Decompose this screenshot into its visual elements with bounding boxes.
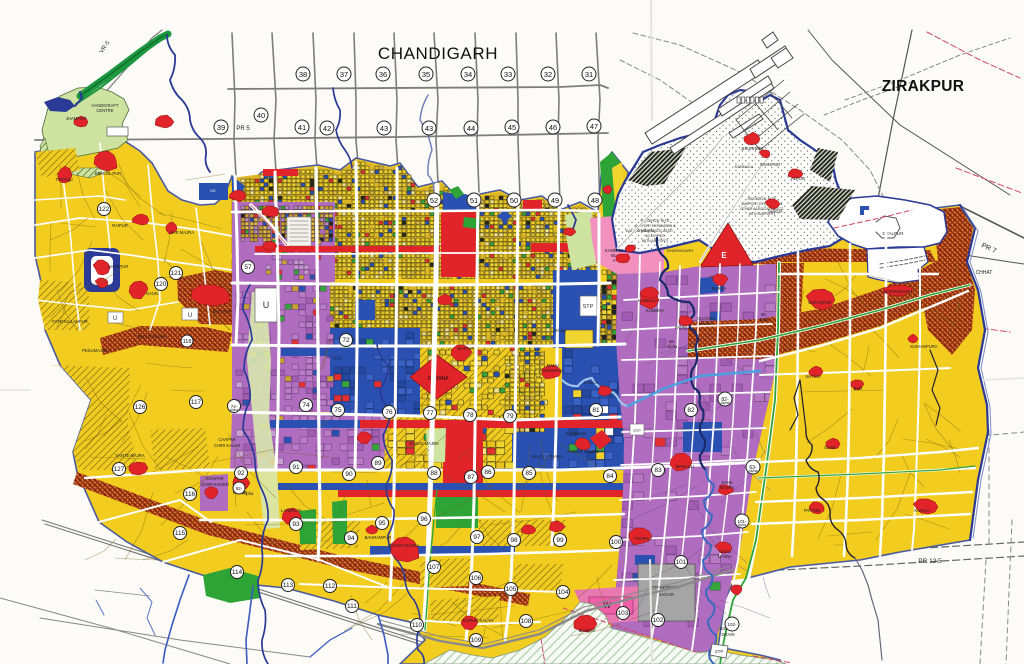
- svg-text:U: U: [263, 300, 270, 310]
- svg-text:BAHRAMPUR: BAHRAMPUR: [365, 535, 392, 540]
- svg-text:85: 85: [525, 470, 533, 477]
- svg-text:CENTRE: CENTRE: [96, 108, 113, 113]
- svg-text:MAJRA: MAJRA: [718, 554, 732, 559]
- svg-text:49: 49: [551, 196, 559, 205]
- svg-text:42: 42: [323, 124, 331, 133]
- svg-text:SHAHPUR: SHAHPUR: [760, 162, 780, 167]
- svg-text:115: 115: [175, 530, 186, 537]
- svg-text:DAUN: DAUN: [146, 291, 158, 296]
- svg-text:NATIAN: NATIAN: [805, 374, 820, 379]
- svg-text:A: A: [613, 258, 616, 263]
- svg-text:KISHANPURA: KISHANPURA: [910, 344, 937, 349]
- svg-text:E: E: [721, 251, 727, 260]
- svg-text:92: 92: [237, 470, 245, 477]
- svg-text:112: 112: [325, 583, 336, 590]
- svg-text:ACTIVITIES: ACTIVITIES: [645, 234, 665, 238]
- svg-text:Alpha: Alpha: [230, 408, 238, 412]
- svg-text:KANDALA: KANDALA: [735, 164, 754, 169]
- svg-text:PR 12.5: PR 12.5: [918, 558, 942, 565]
- svg-text:43: 43: [425, 124, 433, 133]
- svg-text:BAR: BAR: [854, 386, 863, 391]
- svg-text:KURALI: KURALI: [914, 508, 929, 513]
- svg-text:106: 106: [471, 575, 482, 582]
- svg-text:CHAPAR: CHAPAR: [218, 437, 235, 442]
- svg-text:BARIANGARH: BARIANGARH: [884, 289, 912, 294]
- svg-text:MANAV MAJRA: MANAV MAJRA: [409, 441, 439, 446]
- svg-text:STP: STP: [633, 428, 641, 433]
- svg-text:NAGAR: NAGAR: [658, 592, 675, 597]
- svg-text:113: 113: [283, 582, 294, 589]
- svg-text:PESUMAJRA: PESUMAJRA: [82, 348, 108, 353]
- svg-text:CHANDIGARH: CHANDIGARH: [378, 44, 498, 63]
- svg-text:DG: DG: [210, 189, 216, 193]
- svg-text:41: 41: [298, 123, 306, 132]
- svg-text:LANDRAN: LANDRAN: [281, 508, 301, 513]
- svg-text:45: 45: [508, 123, 516, 132]
- svg-text:94: 94: [347, 535, 355, 542]
- svg-text:U: U: [113, 316, 117, 322]
- svg-text:40: 40: [257, 111, 265, 120]
- svg-text:82: 82: [687, 407, 695, 414]
- svg-text:DAKARPUR: DAKARPUR: [808, 300, 831, 305]
- svg-text:SHANPUR: SHANPUR: [108, 264, 128, 269]
- svg-text:39: 39: [217, 123, 225, 132]
- svg-text:Alpha: Alpha: [749, 469, 758, 473]
- svg-text:91: 91: [292, 464, 300, 471]
- svg-text:KUMBRA: KUMBRA: [646, 308, 664, 313]
- svg-text:JHIURHERI: JHIURHERI: [741, 146, 763, 151]
- svg-text:120: 120: [156, 281, 167, 288]
- svg-text:JANGIA: JANGIA: [767, 209, 782, 214]
- svg-text:JHAMPUR: JHAMPUR: [66, 116, 86, 121]
- svg-text:BANETA: BANETA: [579, 628, 596, 633]
- svg-text:100: 100: [611, 539, 622, 546]
- svg-text:118: 118: [183, 339, 192, 345]
- svg-text:KANDALA: KANDALA: [638, 298, 658, 303]
- svg-text:102-: 102-: [727, 622, 737, 627]
- svg-text:37: 37: [340, 70, 348, 79]
- svg-text:99: 99: [556, 537, 564, 544]
- svg-text:126: 126: [135, 404, 146, 411]
- svg-text:87: 87: [467, 474, 475, 481]
- svg-text:97: 97: [473, 534, 481, 541]
- svg-text:89: 89: [374, 460, 382, 467]
- svg-text:CHILLA: CHILLA: [584, 380, 599, 385]
- svg-text:77: 77: [426, 410, 434, 417]
- svg-text:MAJRA: MAJRA: [699, 321, 713, 326]
- svg-text:MANAULI: MANAULI: [676, 464, 695, 469]
- svg-text:35: 35: [422, 70, 430, 79]
- svg-text:TARAULI: TARAULI: [55, 177, 72, 182]
- svg-text:33: 33: [504, 70, 512, 79]
- svg-text:BHAGO MAJRA: BHAGO MAJRA: [389, 543, 420, 548]
- svg-text:117: 117: [191, 399, 202, 406]
- svg-text:PATTON: PATTON: [804, 508, 820, 513]
- svg-text:BAR MAJRA: BAR MAJRA: [170, 230, 194, 235]
- svg-text:31: 31: [585, 70, 593, 79]
- svg-text:THURALI: THURALI: [634, 536, 652, 541]
- svg-text:111: 111: [347, 603, 357, 610]
- svg-text:92-: 92-: [236, 486, 243, 491]
- svg-text:BEHLOL PUR: BEHLOL PUR: [95, 171, 121, 176]
- svg-text:48: 48: [591, 196, 599, 205]
- svg-text:CHIRI KALAN: CHIRI KALAN: [214, 443, 240, 448]
- svg-text:114: 114: [232, 569, 243, 576]
- svg-text:81: 81: [592, 407, 600, 414]
- svg-text:127: 127: [114, 466, 125, 473]
- svg-text:MATAUR: MATAUR: [457, 346, 474, 351]
- svg-text:88: 88: [430, 470, 438, 477]
- svg-text:ZIRAKPUR: ZIRAKPUR: [882, 78, 964, 95]
- svg-text:34: 34: [464, 70, 472, 79]
- svg-text:PAPRI: PAPRI: [675, 325, 687, 330]
- svg-text:SANTE MAJRA: SANTE MAJRA: [115, 453, 145, 458]
- svg-text:Alpha: Alpha: [667, 344, 678, 349]
- svg-text:CHHAT: CHHAT: [976, 270, 993, 276]
- svg-text:SUAN: SUAN: [824, 445, 836, 450]
- svg-text:RAIPUR KHURD: RAIPUR KHURD: [567, 449, 599, 454]
- svg-text:44: 44: [467, 124, 475, 133]
- svg-text:43: 43: [380, 124, 388, 133]
- svg-text:76: 76: [385, 409, 393, 416]
- svg-text:DHARMGARH: DHARMGARH: [667, 248, 693, 253]
- svg-text:90: 90: [345, 471, 353, 478]
- svg-text:79: 79: [506, 413, 514, 420]
- svg-text:95: 95: [378, 520, 386, 527]
- svg-text:U: U: [188, 313, 192, 319]
- svg-text:MAULI SOHANA: MAULI SOHANA: [531, 454, 563, 459]
- svg-text:SAMBALKI: SAMBALKI: [566, 431, 587, 436]
- svg-text:110: 110: [412, 622, 423, 629]
- svg-text:104: 104: [558, 589, 569, 596]
- svg-text:83: 83: [654, 467, 662, 474]
- svg-text:FATEHULLAHPUR: FATEHULLAHPUR: [52, 319, 88, 324]
- svg-text:84: 84: [606, 473, 614, 480]
- svg-text:WITH AIRPORT): WITH AIRPORT): [642, 239, 668, 243]
- svg-text:BAIDWAN: BAIDWAN: [543, 368, 562, 373]
- svg-text:BELLO MAJRA: BELLO MAJRA: [138, 334, 167, 339]
- svg-text:47: 47: [590, 122, 598, 131]
- svg-text:101: 101: [676, 559, 687, 566]
- svg-text:107: 107: [429, 564, 440, 571]
- svg-text:105: 105: [506, 586, 517, 593]
- svg-text:121: 121: [171, 270, 182, 277]
- svg-text:50: 50: [510, 196, 518, 205]
- svg-text:BALONGI: BALONGI: [213, 309, 232, 314]
- svg-text:86: 86: [484, 469, 492, 476]
- svg-text:57: 57: [244, 264, 252, 271]
- svg-text:78: 78: [466, 412, 474, 419]
- svg-text:KAURU MAJRA: KAURU MAJRA: [626, 228, 655, 233]
- svg-text:52: 52: [430, 196, 438, 205]
- svg-text:38: 38: [299, 70, 307, 79]
- svg-text:109: 109: [471, 637, 482, 644]
- svg-text:36: 36: [379, 70, 387, 79]
- svg-text:MAULI: MAULI: [554, 328, 567, 333]
- svg-text:RURKA: RURKA: [712, 286, 727, 291]
- svg-text:72: 72: [342, 337, 350, 344]
- svg-text:75: 75: [334, 407, 342, 414]
- svg-text:CHIRI KHURD: CHIRI KHURD: [201, 482, 228, 487]
- svg-text:Alpha: Alpha: [721, 401, 730, 405]
- svg-text:STP: STP: [715, 649, 724, 654]
- svg-text:SOHANA: SOHANA: [427, 376, 449, 382]
- svg-text:103: 103: [618, 610, 629, 617]
- svg-text:51: 51: [470, 196, 478, 205]
- svg-text:98: 98: [510, 537, 518, 544]
- svg-text:ALPUR: ALPUR: [791, 176, 805, 181]
- svg-text:122: 122: [99, 206, 110, 213]
- svg-text:32: 32: [544, 70, 552, 79]
- svg-text:116: 116: [185, 491, 196, 498]
- svg-text:CHAPAR: CHAPAR: [206, 476, 223, 481]
- svg-text:108: 108: [521, 618, 532, 625]
- svg-text:KAIPUR KALAN: KAIPUR KALAN: [463, 618, 494, 623]
- svg-text:46: 46: [549, 123, 557, 132]
- svg-text:96: 96: [420, 516, 428, 523]
- svg-text:MAJRA: MAJRA: [720, 485, 734, 490]
- svg-text:Beta: Beta: [760, 317, 769, 322]
- svg-text:Apha: Apha: [738, 523, 746, 527]
- svg-text:STP: STP: [583, 304, 594, 310]
- svg-text:74: 74: [302, 402, 310, 409]
- svg-text:RAIPUR: RAIPUR: [112, 223, 128, 228]
- svg-text:93: 93: [292, 521, 300, 528]
- svg-text:PR 5: PR 5: [236, 126, 250, 132]
- svg-text:102: 102: [653, 617, 664, 624]
- svg-text:DRAIN: DRAIN: [721, 632, 734, 637]
